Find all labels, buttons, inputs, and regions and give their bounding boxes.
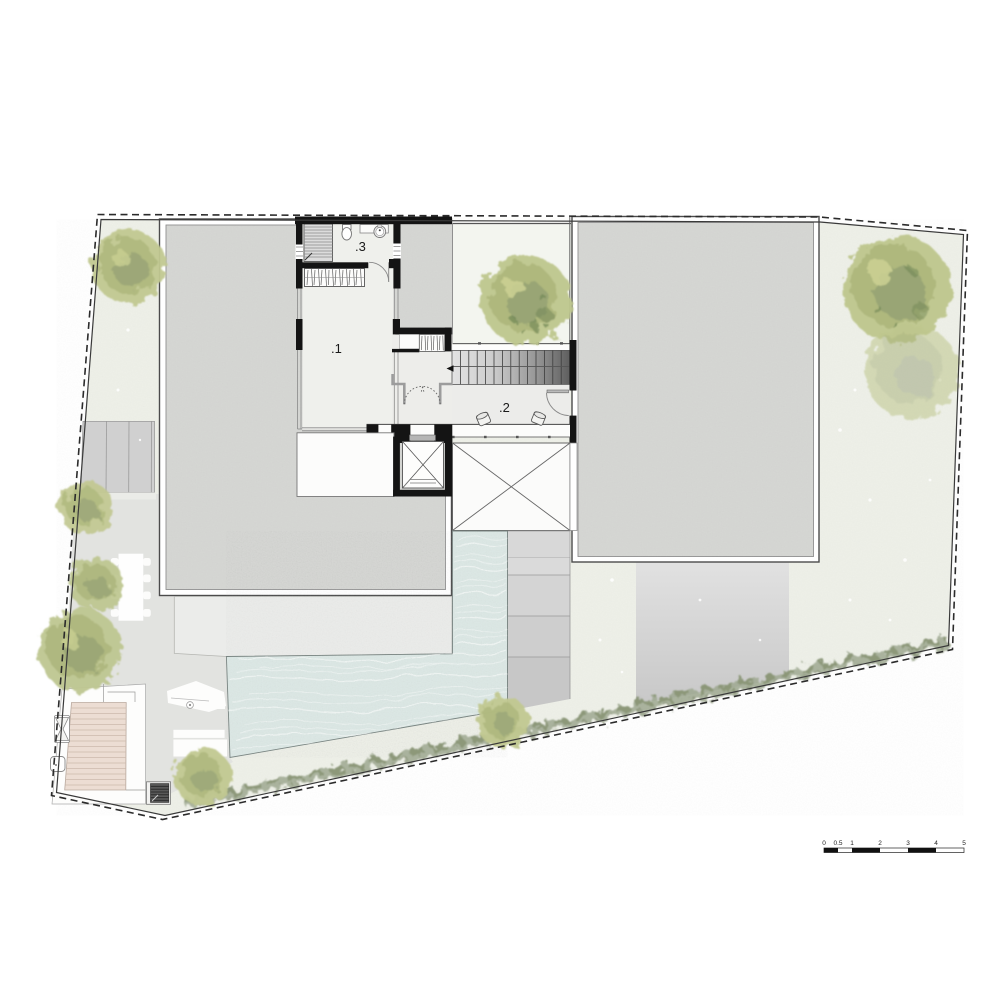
svg-text:5: 5	[962, 840, 966, 847]
svg-text:0: 0	[822, 840, 826, 847]
svg-text:3: 3	[906, 840, 910, 847]
svg-text:.1: .1	[331, 341, 342, 356]
svg-text:.2: .2	[499, 400, 510, 415]
svg-text:2: 2	[878, 840, 882, 847]
svg-text:.3: .3	[355, 239, 366, 254]
svg-text:1: 1	[850, 840, 854, 847]
svg-text:0.5: 0.5	[833, 840, 842, 847]
svg-text:4: 4	[934, 840, 938, 847]
